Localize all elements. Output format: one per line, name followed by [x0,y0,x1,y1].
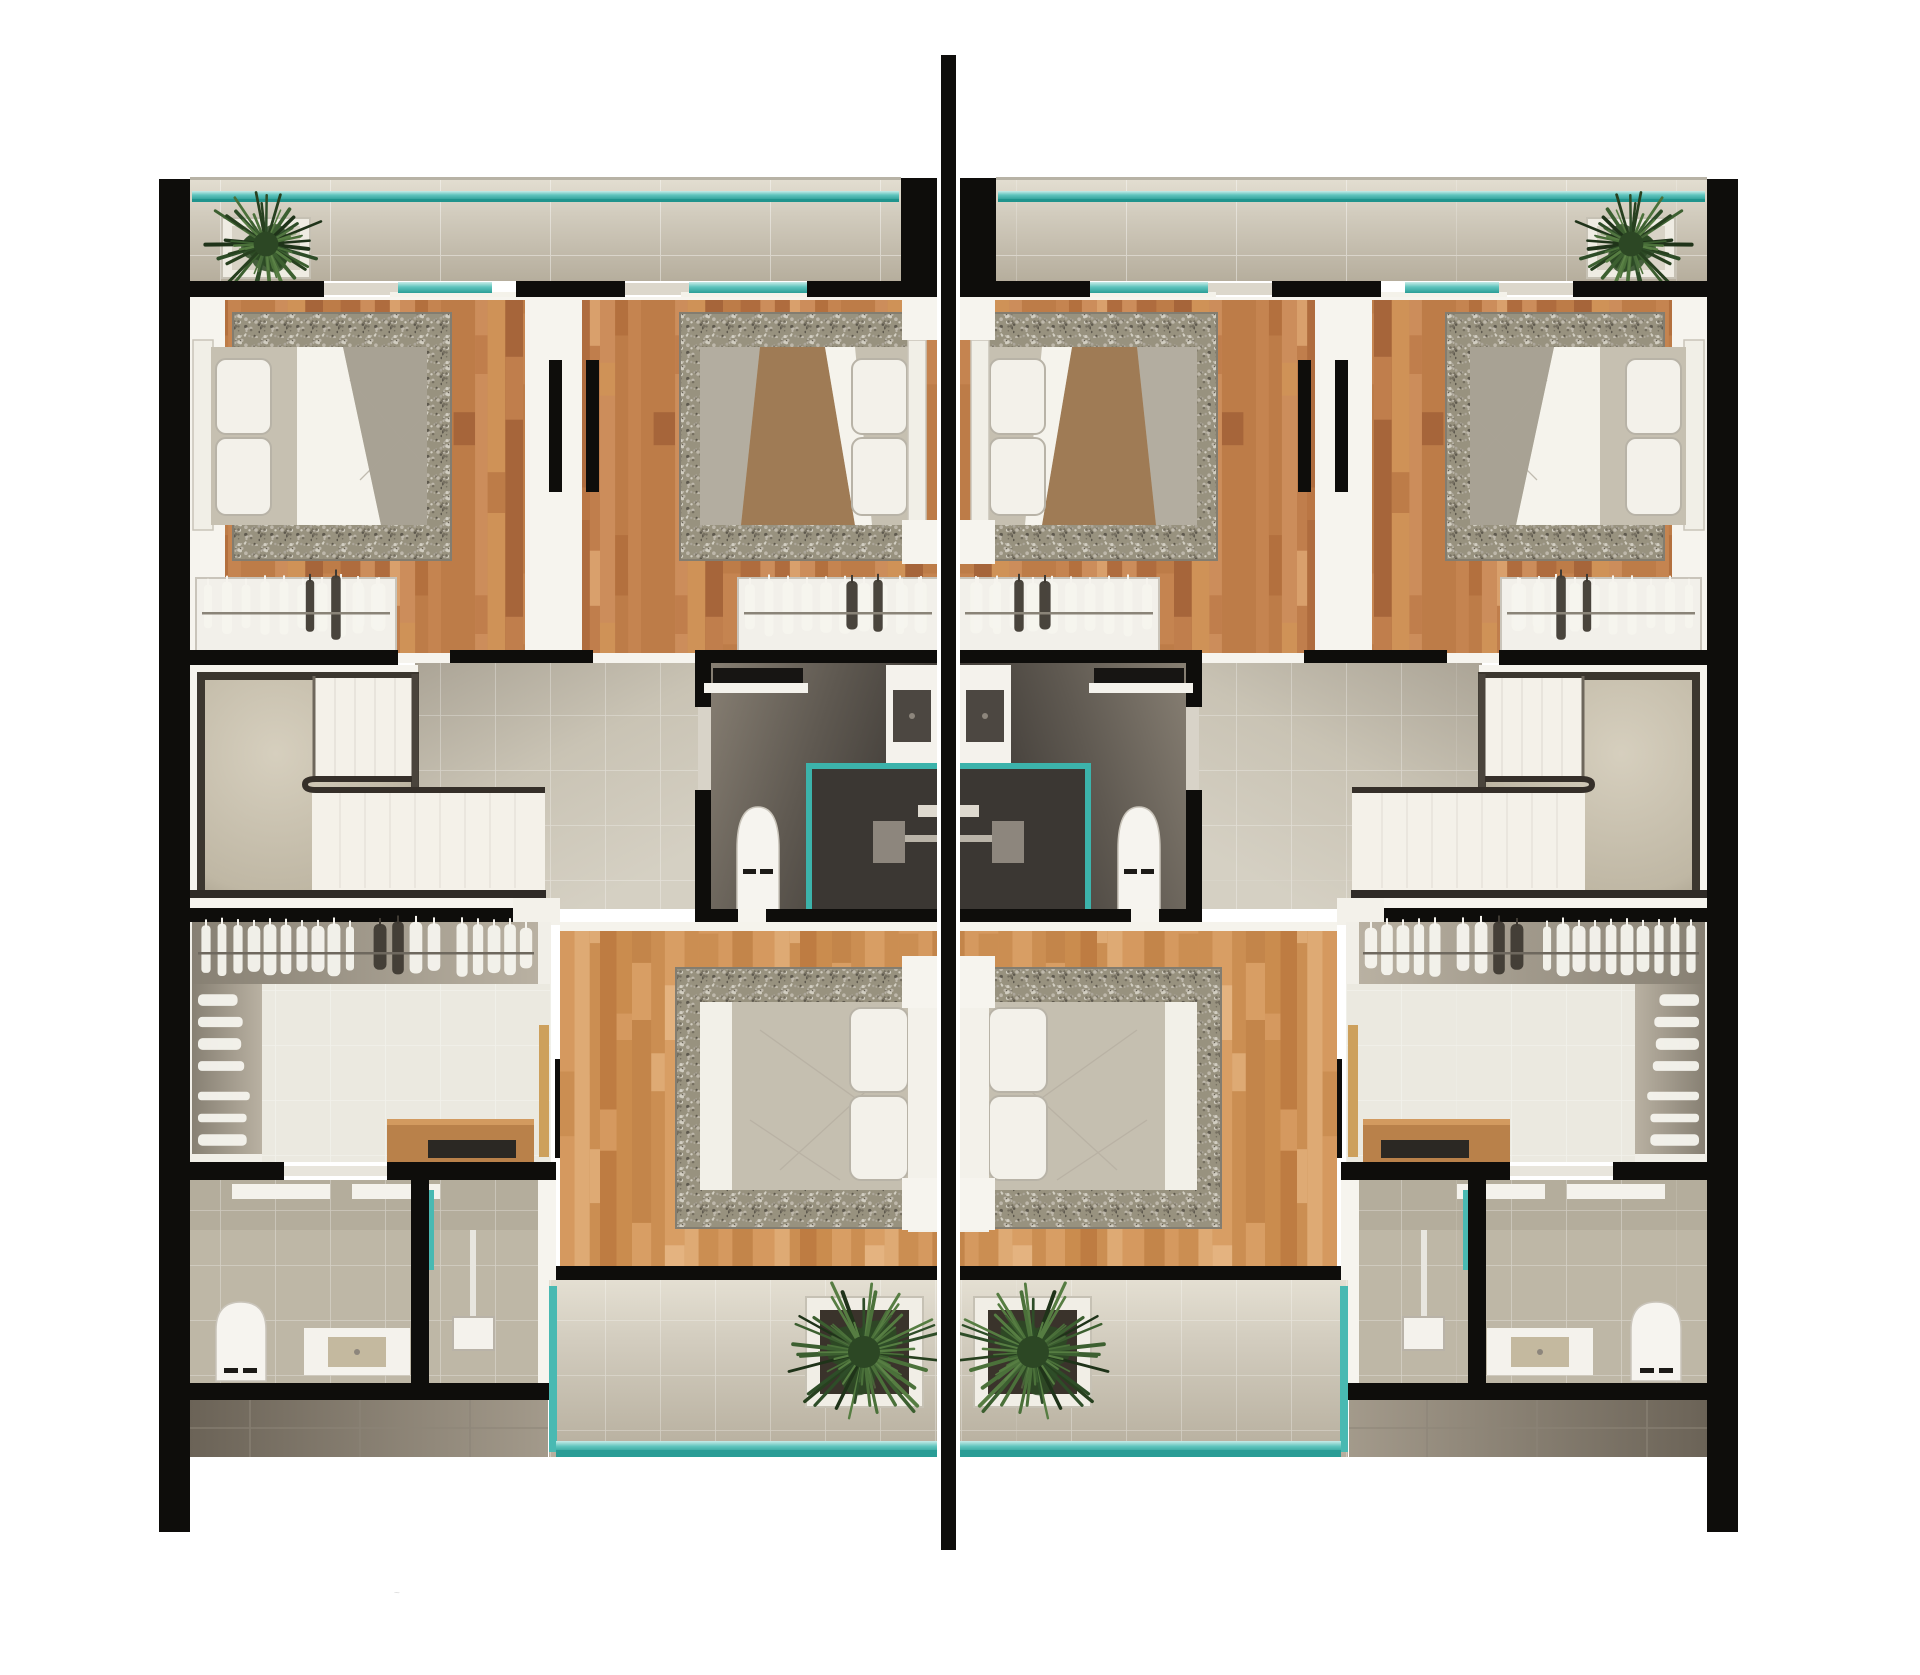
svg-text:~: ~ [394,1588,400,1599]
